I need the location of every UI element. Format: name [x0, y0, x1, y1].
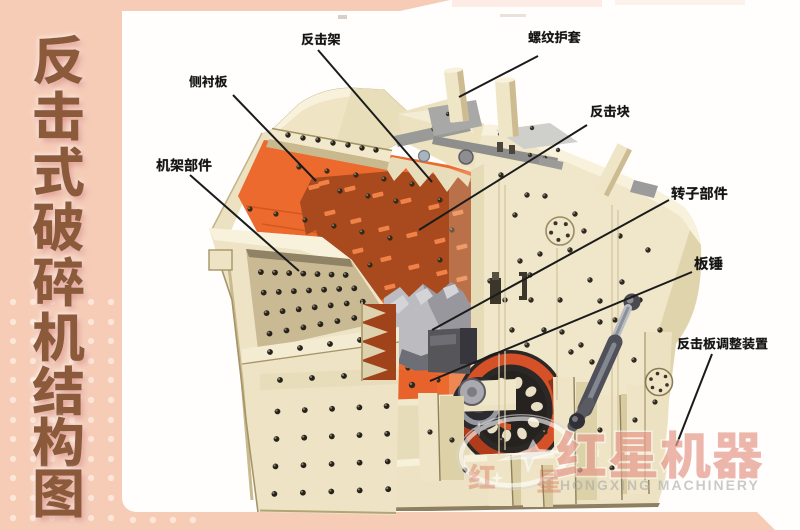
- svg-text:HONGXING MACHINERY: HONGXING MACHINERY: [560, 477, 760, 493]
